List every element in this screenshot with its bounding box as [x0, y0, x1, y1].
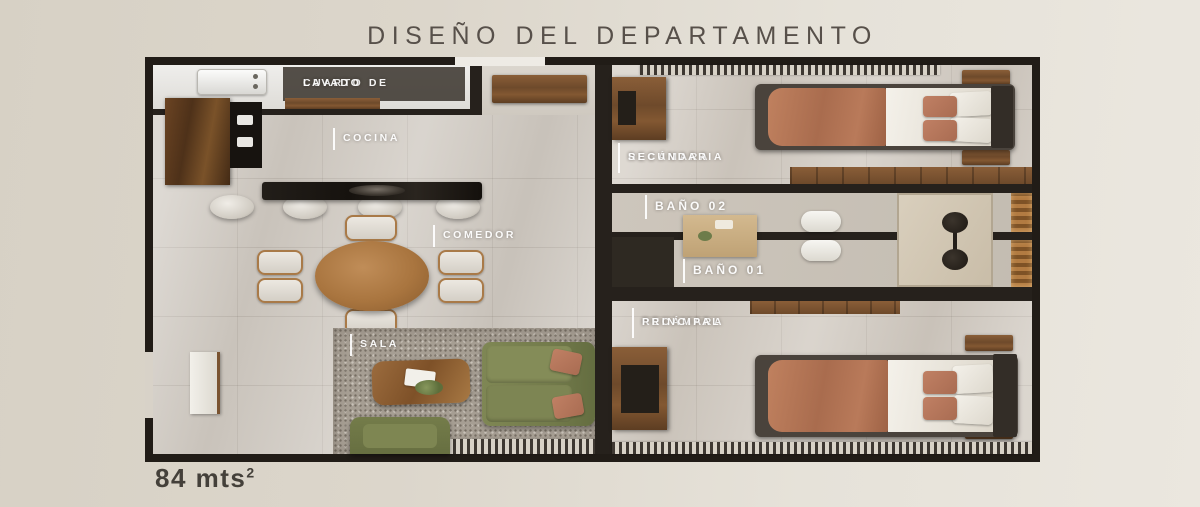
- secondary-bedroom-closet: [790, 167, 1032, 184]
- shower-head: [942, 249, 968, 270]
- secondary-desk-chair: [618, 91, 636, 125]
- washing-machine-dial: [253, 74, 258, 79]
- bathroom-01-label-text: BAÑO 01: [693, 263, 766, 279]
- main-bed-pillow: [923, 397, 957, 420]
- main-bed-pillow: [952, 364, 993, 394]
- main-bedroom-label: RECÁMARA PRINCIPAL: [632, 308, 642, 338]
- entry-wall: [470, 65, 482, 115]
- bathroom-02-label: BAÑO 02: [645, 195, 655, 219]
- main-bedroom-closet: [750, 301, 900, 314]
- shower-area: [897, 193, 993, 287]
- bathroom-bedroom-wall: [612, 287, 1032, 301]
- counter-sink: [349, 185, 405, 196]
- main-bed-pillow: [952, 395, 993, 425]
- kitchen-tall-cabinet: [165, 98, 230, 185]
- floor-plan: CUARTO DE LAVADO COCINA COMEDOR: [145, 57, 1040, 462]
- main-bedroom-label-line2: PRINCIPAL: [642, 316, 721, 330]
- dining-label-text: COMEDOR: [443, 229, 516, 243]
- dining-chair: [345, 215, 397, 241]
- secondary-nightstand: [962, 150, 1010, 165]
- area-value: 84 mts: [155, 463, 246, 493]
- main-bedroom-runner-rug: [612, 442, 1032, 454]
- secondary-bed-blanket: [768, 88, 886, 146]
- secondary-bedroom-label: RECÁMARA SECUNDARIA: [618, 143, 628, 173]
- area-exponent: 2: [246, 464, 255, 480]
- secondary-bed-headboard: [991, 86, 1013, 148]
- bathroom-shelves: [1011, 193, 1032, 232]
- living-label-text: SALA: [360, 338, 399, 352]
- center-wall: [595, 65, 612, 454]
- dining-table: [315, 241, 429, 311]
- page-title: DISEÑO DEL DEPARTAMENTO: [315, 22, 930, 51]
- area-label: 84 mts2: [155, 463, 256, 494]
- dining-label: COMEDOR: [433, 225, 443, 247]
- kitchen-label: COCINA: [333, 128, 343, 150]
- main-bed-blanket: [768, 360, 888, 432]
- kitchen-upper-cabinet: [285, 98, 380, 109]
- entry-console-cabinet: [492, 75, 587, 103]
- shower-head: [942, 212, 968, 233]
- dining-chair: [257, 278, 303, 303]
- bedroom-bathroom-wall: [612, 184, 1032, 193]
- open-door: [190, 352, 220, 414]
- main-dresser-panel: [621, 365, 659, 413]
- bar-stool: [210, 195, 254, 219]
- secondary-bedroom-label-line2: SECUNDARIA: [628, 151, 724, 165]
- main-bed-headboard: [993, 354, 1017, 437]
- main-bed-pillow: [923, 371, 957, 394]
- laundry-label-line2: LAVADO: [303, 77, 361, 91]
- bathroom-01-label: BAÑO 01: [683, 259, 693, 283]
- secondary-nightstand: [962, 70, 1010, 85]
- secondary-bed-pillow: [923, 120, 957, 141]
- dining-chair: [438, 278, 484, 303]
- dining-chair: [257, 250, 303, 275]
- main-nightstand: [965, 335, 1013, 351]
- bathroom-02-label-text: BAÑO 02: [655, 199, 728, 215]
- washing-machine: [197, 69, 267, 95]
- laundry-label-panel: CUARTO DE LAVADO: [283, 67, 465, 101]
- secondary-bed-pillow: [923, 96, 957, 117]
- toilet-bathroom-01: [801, 240, 841, 261]
- bathroom-entry-dark: [612, 237, 674, 287]
- coffee-table-plant: [415, 380, 443, 395]
- kitchen-appliances: [230, 102, 262, 168]
- page-background: DISEÑO DEL DEPARTAMENTO CUARTO DE LAVADO…: [0, 0, 1200, 507]
- washing-machine-dial: [253, 84, 258, 89]
- oven-panel: [237, 115, 253, 125]
- bathroom-shelves: [1011, 240, 1032, 287]
- living-label: SALA: [350, 334, 360, 356]
- entry-door-gap: [455, 57, 545, 66]
- vanity-tray: [715, 220, 733, 229]
- toilet-bathroom-02: [801, 211, 841, 232]
- vanity-plant: [698, 231, 712, 241]
- oven-panel: [237, 137, 253, 147]
- armchair-cushion: [363, 424, 437, 448]
- left-wall-opening: [145, 352, 153, 418]
- dining-chair: [438, 250, 484, 275]
- kitchen-label-text: COCINA: [343, 132, 400, 146]
- secondary-bedroom-runner-rug: [640, 65, 940, 75]
